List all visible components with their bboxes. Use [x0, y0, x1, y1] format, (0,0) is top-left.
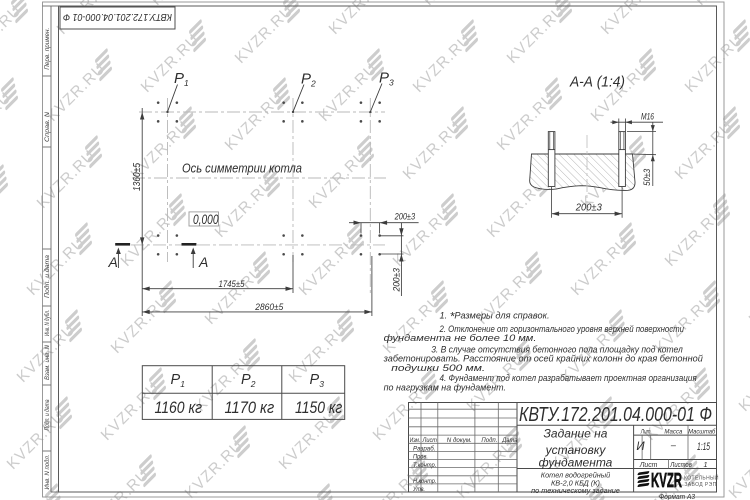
svg-text:Дата: Дата [501, 437, 517, 444]
svg-text:Подп.: Подп. [481, 436, 497, 444]
svg-text:KVZR.RU: KVZR.RU [296, 234, 361, 299]
svg-text:P: P [241, 372, 251, 388]
svg-text:KVZR.RU: KVZR.RU [746, 263, 750, 328]
svg-text:P: P [379, 70, 389, 87]
svg-text:1160 кг: 1160 кг [155, 399, 203, 417]
svg-text:ЗАВОД РЭП: ЗАВОД РЭП [684, 482, 716, 488]
svg-text:1. *Размеры для справок.: 1. *Размеры для справок. [440, 311, 550, 324]
svg-text:1: 1 [184, 78, 189, 88]
svg-text:KVZR.RU: KVZR.RU [400, 118, 465, 183]
svg-text:KVZR.RU: KVZR.RU [410, 31, 475, 96]
svg-text:KVZR.RU: KVZR.RU [108, 292, 173, 357]
svg-text:KVZR.RU: KVZR.RU [276, 408, 341, 473]
svg-text:1: 1 [704, 460, 708, 469]
svg-text:Пров.: Пров. [413, 454, 428, 461]
svg-text:А: А [108, 254, 118, 270]
svg-text:Ось симметрии котла: Ось симметрии котла [182, 161, 302, 176]
svg-text:KVZR.RU: KVZR.RU [692, 0, 750, 9]
svg-text:KVZR.RU: KVZR.RU [726, 437, 750, 500]
svg-text:KVZR.RU: KVZR.RU [118, 205, 183, 270]
svg-text:KVZR.RU: KVZR.RU [222, 89, 287, 154]
svg-text:KVZR.RU: KVZR.RU [420, 0, 485, 9]
svg-text:KVZR.RU: KVZR.RU [568, 234, 633, 299]
svg-text:Листов: Листов [669, 460, 692, 469]
svg-text:N докум.: N докум. [447, 436, 472, 444]
svg-text:P: P [310, 372, 320, 388]
svg-text:Лист: Лист [422, 437, 438, 444]
svg-text:КВТУ.172.201.04.000-01 Ф: КВТУ.172.201.04.000-01 Ф [519, 404, 712, 426]
svg-text:1745±5: 1745±5 [219, 279, 246, 290]
svg-text:Инв. N дубл.: Инв. N дубл. [45, 310, 51, 336]
svg-text:1:15: 1:15 [697, 441, 711, 453]
svg-text:–: – [670, 440, 677, 450]
svg-text:0,000: 0,000 [193, 212, 219, 227]
svg-text:Инв. N подл.: Инв. N подл. [45, 455, 51, 490]
svg-text:KVZR.RU: KVZR.RU [34, 147, 99, 212]
svg-text:Формат А3: Формат А3 [659, 494, 695, 500]
svg-text:Подп. и дата: Подп. и дата [45, 254, 51, 298]
svg-text:KVZR.RU: KVZR.RU [24, 234, 89, 299]
svg-text:Утв.: Утв. [412, 486, 425, 493]
svg-text:1: 1 [180, 379, 185, 389]
svg-text:KVZR.RU: KVZR.RU [232, 2, 297, 67]
svg-text:KVZR.RU: KVZR.RU [662, 205, 727, 270]
svg-text:KVZR.RU: KVZR.RU [202, 263, 267, 328]
svg-text:М16: М16 [641, 112, 654, 122]
svg-text:KVZR.RU: KVZR.RU [44, 60, 109, 125]
svg-text:Задание на: Задание на [544, 427, 608, 441]
svg-text:КВТУ.172.201.04.000-01 Ф: КВТУ.172.201.04.000-01 Ф [63, 11, 172, 23]
svg-text:Лист: Лист [639, 460, 658, 469]
svg-text:фундамента не более 10 мм.: фундамента не более 10 мм. [384, 333, 537, 343]
svg-text:KVZR.RU: KVZR.RU [316, 60, 381, 125]
svg-text:3: 3 [389, 78, 394, 88]
svg-text:Взам. инв. N: Взам. инв. N [45, 344, 51, 380]
svg-text:Подп. и дата: Подп. и дата [45, 399, 51, 431]
svg-text:200±3: 200±3 [392, 268, 402, 292]
svg-text:2: 2 [250, 379, 256, 389]
svg-text:200±3: 200±3 [575, 202, 602, 214]
svg-text:Изм.: Изм. [410, 437, 421, 444]
svg-text:200±3: 200±3 [394, 212, 415, 222]
svg-text:KVZR.RU: KVZR.RU [454, 437, 519, 500]
svg-text:KVZR.RU: KVZR.RU [682, 31, 747, 96]
svg-text:KVZR.RU: KVZR.RU [212, 176, 277, 241]
svg-text:KVZR.RU: KVZR.RU [4, 408, 69, 473]
svg-text:фундамента: фундамента [539, 456, 613, 470]
svg-text:И: И [636, 441, 645, 453]
svg-text:А-А (1:4): А-А (1:4) [569, 74, 625, 91]
svg-text:КОТЕЛЬНЫЙ: КОТЕЛЬНЫЙ [684, 474, 719, 482]
svg-text:подушки 500 мм.: подушки 500 мм. [391, 363, 485, 373]
svg-text:Масштаб: Масштаб [688, 428, 716, 436]
svg-text:2: 2 [310, 79, 316, 89]
svg-text:Масса: Масса [664, 429, 682, 436]
svg-text:P: P [301, 71, 311, 88]
svg-text:P: P [171, 372, 181, 388]
svg-text:50±3: 50±3 [642, 168, 653, 186]
svg-text:P: P [174, 70, 184, 87]
svg-text:Н.контр.: Н.контр. [413, 478, 436, 485]
svg-text:KVZR.RU: KVZR.RU [138, 31, 203, 96]
svg-text:Лит.: Лит. [640, 429, 652, 436]
svg-text:3: 3 [319, 379, 324, 389]
svg-text:1150 кг: 1150 кг [295, 399, 342, 417]
svg-text:KVZR.RU: KVZR.RU [672, 118, 737, 183]
svg-text:1360±5: 1360±5 [132, 163, 143, 191]
svg-text:по техническому задание: по техническому задание [531, 486, 620, 495]
svg-text:KVZR.RU: KVZR.RU [504, 2, 569, 67]
svg-text:Справ. N: Справ. N [45, 111, 51, 142]
svg-text:Перв. примен.: Перв. примен. [45, 28, 51, 70]
svg-text:по нагрузкам на фундамент.: по нагрузкам на фундамент. [384, 382, 506, 392]
svg-text:2860±5: 2860±5 [254, 302, 284, 313]
svg-text:Т.контр.: Т.контр. [413, 462, 436, 469]
svg-text:KVZR.RU: KVZR.RU [0, 2, 25, 67]
svg-text:KVZR.RU: KVZR.RU [182, 437, 247, 500]
svg-text:KVZR: KVZR [651, 470, 682, 492]
svg-text:KVZR.RU: KVZR.RU [736, 350, 750, 415]
svg-text:А: А [198, 254, 208, 270]
svg-text:KVZR.RU: KVZR.RU [98, 379, 163, 444]
svg-text:KVZR.RU: KVZR.RU [306, 147, 371, 212]
svg-text:1170 кг: 1170 кг [225, 399, 275, 417]
svg-text:Разраб.: Разраб. [413, 445, 436, 453]
